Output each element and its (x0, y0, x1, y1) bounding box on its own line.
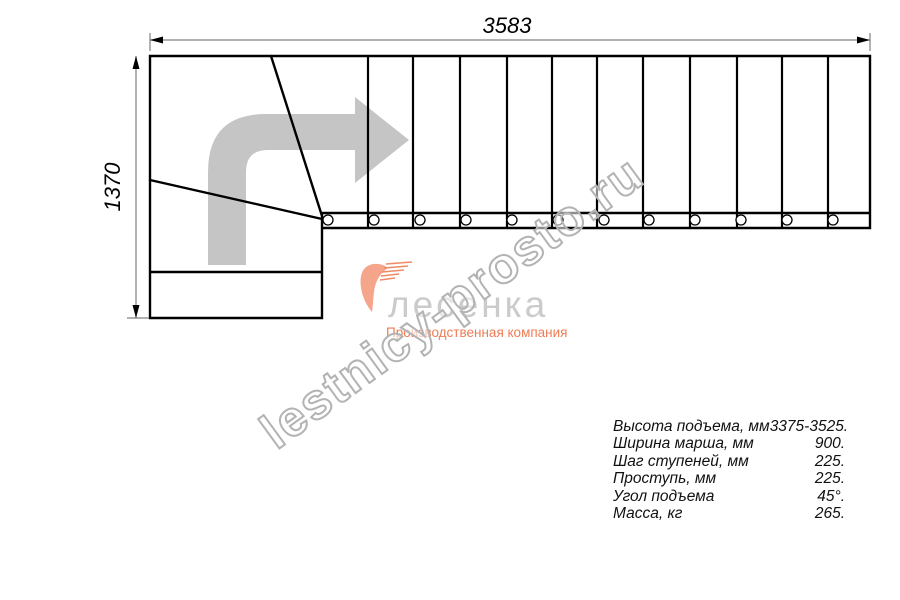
spec-label: Угол подъема (613, 488, 714, 505)
spec-row-height: Высота подъема, мм 3375-3525. (613, 418, 845, 435)
drawing-sheet: 3583 1370 лесенка Производственная компа… (0, 0, 900, 600)
spec-label: Масса, кг (613, 505, 682, 522)
spec-value: 225. (815, 470, 845, 487)
spec-label: Шаг ступеней, мм (613, 453, 749, 470)
spec-table: Высота подъема, мм 3375-3525. Ширина мар… (613, 418, 845, 522)
spec-row-tread: Проступь, мм 225. (613, 470, 845, 487)
spec-value: 900. (815, 435, 845, 452)
top-dimension-label: 3583 (483, 13, 533, 38)
direction-arrow (208, 97, 409, 265)
spec-value: 265. (815, 505, 845, 522)
spec-row-step: Шаг ступеней, мм 225. (613, 453, 845, 470)
spec-label: Проступь, мм (613, 470, 716, 487)
spec-value: 3375-3525. (770, 418, 848, 435)
spec-label: Высота подъема, мм (613, 418, 770, 435)
left-dimension-label: 1370 (100, 162, 125, 212)
spec-row-angle: Угол подъема 45°. (613, 488, 845, 505)
spec-value: 225. (815, 453, 845, 470)
step-hole-circles (323, 215, 838, 225)
company-logo: лесенка Производственная компания (352, 256, 582, 348)
logo-tagline: Производственная компания (386, 326, 567, 340)
logo-company-name: лесенка (388, 286, 548, 324)
spec-row-mass: Масса, кг 265. (613, 505, 845, 522)
spec-label: Ширина марша, мм (613, 435, 754, 452)
tread-lines (368, 56, 828, 228)
spec-value: 45°. (817, 488, 845, 505)
spec-row-width: Ширина марша, мм 900. (613, 435, 845, 452)
